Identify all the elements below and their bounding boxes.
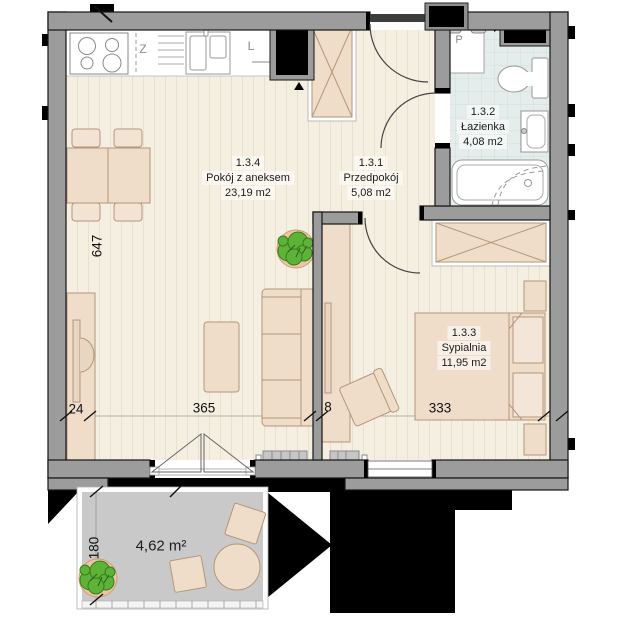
- balcony-plant-icon: [79, 559, 117, 597]
- hall-wardrobe-icon: [308, 23, 356, 121]
- room-name: Sypialnia: [438, 341, 491, 355]
- balcony-area-label: 4,62 m²: [136, 538, 187, 555]
- dim-interior-height: 647: [90, 235, 105, 258]
- room-name: Pokój z aneksem: [202, 171, 294, 185]
- washbasin-icon: [521, 111, 548, 152]
- dim-tv-wall: 24: [68, 402, 83, 417]
- appliance-letter-fridge: L: [248, 39, 255, 53]
- coffee-table-icon: [204, 322, 239, 392]
- room-label-living: 1.3.4 Pokój z aneksem 23,19 m2: [202, 156, 294, 200]
- floorplan-drawing: [0, 0, 622, 626]
- room-area: 5,08 m2: [347, 186, 395, 200]
- room-id: 1.3.2: [467, 105, 499, 119]
- dim-living-width: 365: [193, 401, 216, 416]
- room-name: Przedpokój: [339, 171, 402, 185]
- room-name: Łazienka: [457, 120, 509, 134]
- wardrobe-icon: [432, 219, 550, 266]
- entrance-door-icon: [370, 3, 468, 30]
- appliance-letter-washer: P: [455, 34, 462, 46]
- direction-arrow-icon: [267, 492, 332, 598]
- balcony-stool-icon: [169, 555, 206, 592]
- room-label-bathroom: 1.3.2 Łazienka 4,08 m2: [457, 105, 509, 149]
- room-id: 1.3.1: [355, 156, 387, 170]
- balcony-table-icon: [214, 544, 260, 590]
- dim-bedroom-width: 333: [429, 401, 452, 416]
- sofa-icon: [262, 289, 315, 426]
- room-label-hallway: 1.3.1 Przedpokój 5,08 m2: [339, 156, 402, 200]
- room-area: 4,08 m2: [459, 135, 507, 149]
- room-id: 1.3.3: [448, 326, 480, 340]
- balcony-railing: [82, 601, 263, 608]
- stove-icon: [70, 33, 128, 74]
- floorplan-canvas: 1.3.4 Pokój z aneksem 23,19 m2 1.3.1 Prz…: [0, 0, 622, 626]
- room-area: 23,19 m2: [221, 186, 275, 200]
- dim-partition: 8: [324, 400, 332, 415]
- bedroom-window: [368, 461, 432, 477]
- bathtub-icon: [452, 160, 548, 206]
- tv-cabinet-icon: [67, 293, 95, 460]
- appliance-letter-dish-zone: Z: [139, 42, 146, 56]
- dim-balcony-depth: 180: [87, 537, 102, 560]
- plant-icon: [277, 230, 315, 268]
- room-label-bedroom: 1.3.3 Sypialnia 11,95 m2: [437, 326, 490, 370]
- room-area: 11,95 m2: [437, 356, 490, 370]
- room-id: 1.3.4: [232, 156, 264, 170]
